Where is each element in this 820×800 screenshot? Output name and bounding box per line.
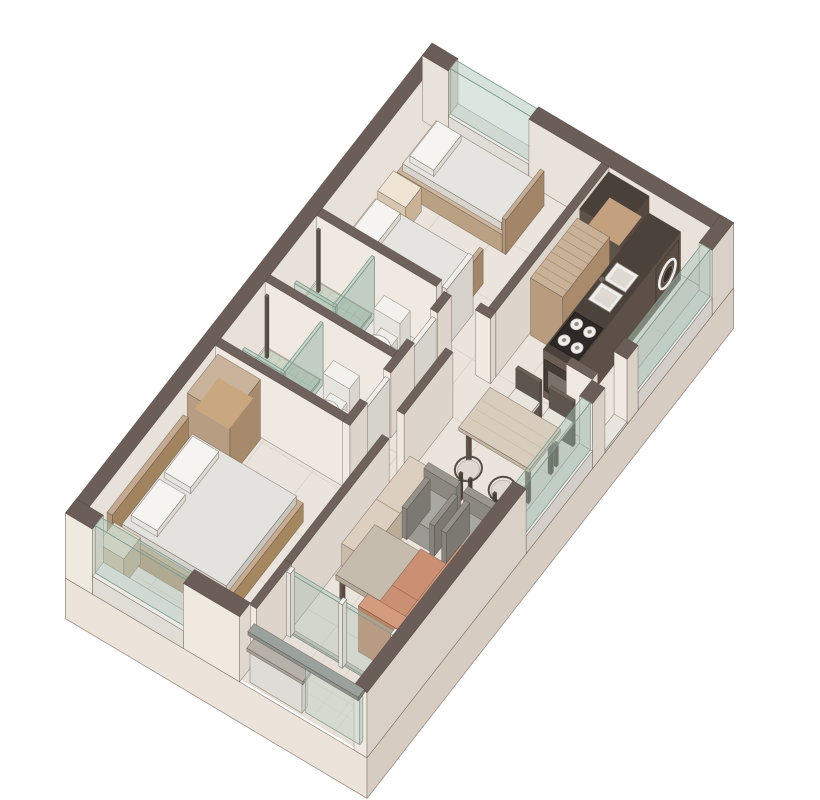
wall-bedroom2-south-stub: [475, 303, 496, 384]
wall-se-facade-b: [614, 338, 638, 425]
kitchen-faucet: [599, 276, 606, 282]
balcony-door-frame-2: [339, 597, 347, 668]
shower2-head-pole: [265, 294, 269, 359]
balcony-door-frame-1: [287, 566, 295, 637]
shower1-head-pole: [316, 228, 320, 293]
apartment-3d-floorplan: [0, 0, 820, 800]
floorplan-svg: [0, 0, 820, 800]
